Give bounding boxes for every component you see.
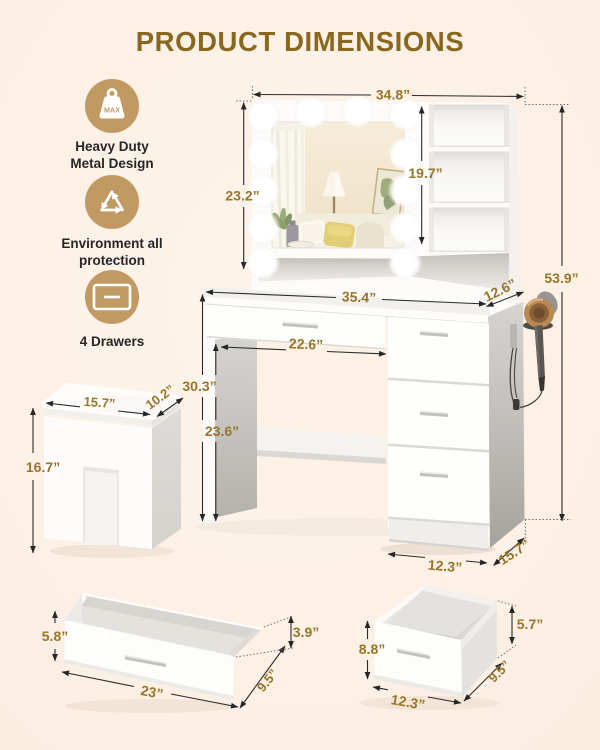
svg-text:3.9”: 3.9”	[293, 624, 319, 640]
svg-text:Metal Design: Metal Design	[70, 156, 153, 171]
svg-text:5.8”: 5.8”	[42, 628, 68, 644]
svg-text:30.3”: 30.3”	[182, 378, 216, 394]
svg-text:35.4”: 35.4”	[342, 288, 377, 305]
svg-text:PRODUCT DIMENSIONS: PRODUCT DIMENSIONS	[136, 26, 465, 57]
svg-text:16.7”: 16.7”	[26, 459, 60, 475]
svg-text:5.7”: 5.7”	[517, 616, 543, 632]
svg-text:Environment all: Environment all	[61, 236, 162, 251]
svg-text:53.9”: 53.9”	[544, 270, 578, 286]
svg-text:34.8”: 34.8”	[376, 87, 410, 103]
svg-text:12.3”: 12.3”	[427, 557, 463, 576]
svg-text:15.7”: 15.7”	[83, 394, 116, 411]
svg-text:22.6”: 22.6”	[289, 335, 324, 352]
svg-text:protection: protection	[79, 253, 145, 268]
svg-text:Heavy Duty: Heavy Duty	[75, 139, 149, 154]
svg-text:4 Drawers: 4 Drawers	[80, 334, 145, 349]
svg-text:23.6”: 23.6”	[205, 423, 239, 439]
svg-text:MAX: MAX	[104, 106, 120, 115]
svg-text:8.8”: 8.8”	[359, 641, 385, 657]
svg-text:19.7”: 19.7”	[408, 165, 442, 181]
svg-text:23.2”: 23.2”	[225, 188, 259, 204]
